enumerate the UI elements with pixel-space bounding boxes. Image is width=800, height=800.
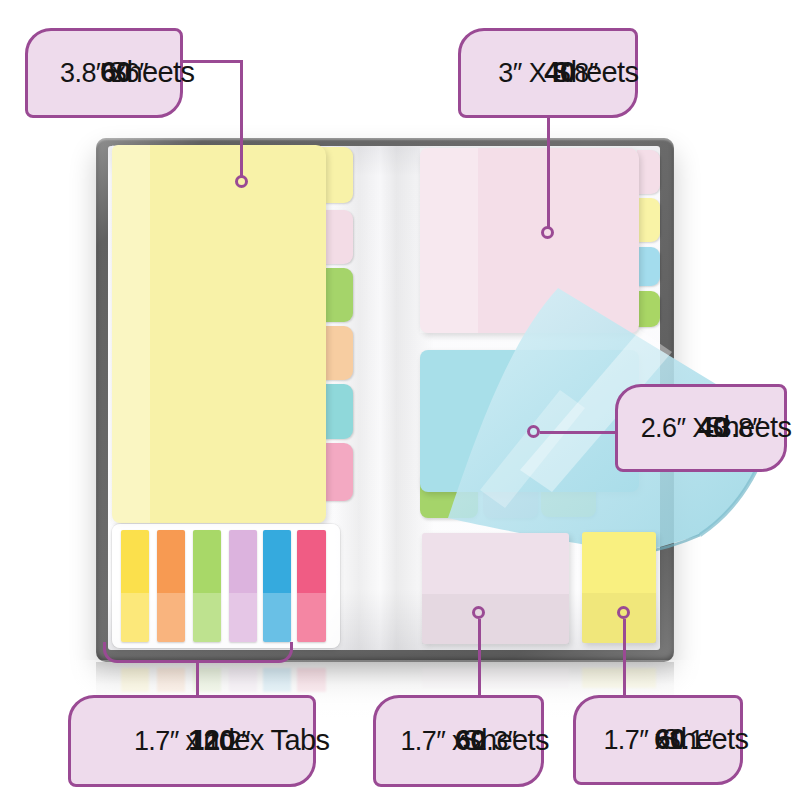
index-tab-blue — [263, 530, 291, 642]
callout-small-pink-pad: 60 Sheets 1.7″ x 2.3″ — [373, 695, 544, 787]
pad-fold-highlight — [112, 145, 150, 523]
pink-notepad-tab — [637, 150, 660, 194]
callout-blue-pad: 40 Sheets 2.6″ X 3.8″ — [615, 384, 787, 472]
bracket-index-tabs — [103, 642, 293, 663]
callout-size-line: 1.7″ x1.1″ — [603, 724, 712, 757]
pad-fold-shadow — [582, 593, 656, 643]
leader-dot-small-yellow-pad — [617, 606, 630, 619]
divider-tab-pink — [322, 210, 353, 264]
callout-pink-pad: 40 Sheets 3″ X 3.8″ — [458, 28, 638, 118]
leader-line-index-tabs — [196, 661, 199, 696]
divider-tab-yellow-right — [637, 198, 660, 242]
leader-dot-small-pink-pad — [472, 606, 485, 619]
index-tab-pink — [297, 530, 326, 642]
callout-large-yellow-pad: 60 Sheets 3.8″ x6″ — [25, 28, 183, 118]
tab-film — [263, 593, 291, 642]
leader-dot-pink-pad — [541, 226, 554, 239]
callout-size-line: 2.6″ X 3.8″ — [641, 412, 762, 445]
index-tab-green — [193, 530, 221, 642]
index-tab-lilac — [229, 530, 257, 642]
callout-index-tabs: 120 Index Tabs 1.7″ x 1.2″ — [68, 695, 316, 787]
leader-dot-blue-pad — [527, 425, 540, 438]
leader-dot-large-yellow-pad — [235, 175, 248, 188]
callout-size-line: 3.8″ x6″ — [60, 57, 148, 90]
small-pink-notepad — [422, 533, 569, 644]
index-tab-yellow — [121, 530, 149, 642]
callout-size-line: 1.7″ x 2.3″ — [400, 725, 516, 758]
leader-line-blue-pad — [540, 431, 617, 434]
large-yellow-notepad — [112, 145, 326, 523]
callout-small-yellow-pad: 60 Sheets 1.7″ x1.1″ — [573, 695, 743, 785]
pad-fold-shadow — [422, 594, 569, 644]
tab-film — [297, 593, 326, 642]
tab-film — [121, 593, 149, 642]
leader-line-small-yellow-pad — [623, 619, 626, 696]
large-yellow-notepad-tab — [322, 147, 353, 203]
divider-tab-green — [322, 268, 353, 322]
tab-film — [193, 593, 221, 642]
callout-size-line: 1.7″ x 1.2″ — [134, 725, 250, 758]
small-yellow-notepad — [582, 532, 656, 643]
divider-tab-rose — [322, 443, 353, 501]
tab-film — [157, 593, 185, 642]
leader-line-small-pink-pad — [478, 619, 481, 696]
index-tab-orange — [157, 530, 185, 642]
leader-line-large-yellow-pad — [240, 60, 243, 176]
product-annotation-image: 60 Sheets 3.8″ x6″ 40 Sheets 3″ X 3.8″ 4… — [0, 0, 800, 800]
divider-tab-teal — [322, 384, 353, 439]
callout-size-line: 3″ X 3.8″ — [498, 57, 597, 90]
leader-line-pink-pad — [547, 115, 550, 228]
tab-film — [229, 593, 257, 642]
divider-tab-peach — [322, 326, 353, 380]
